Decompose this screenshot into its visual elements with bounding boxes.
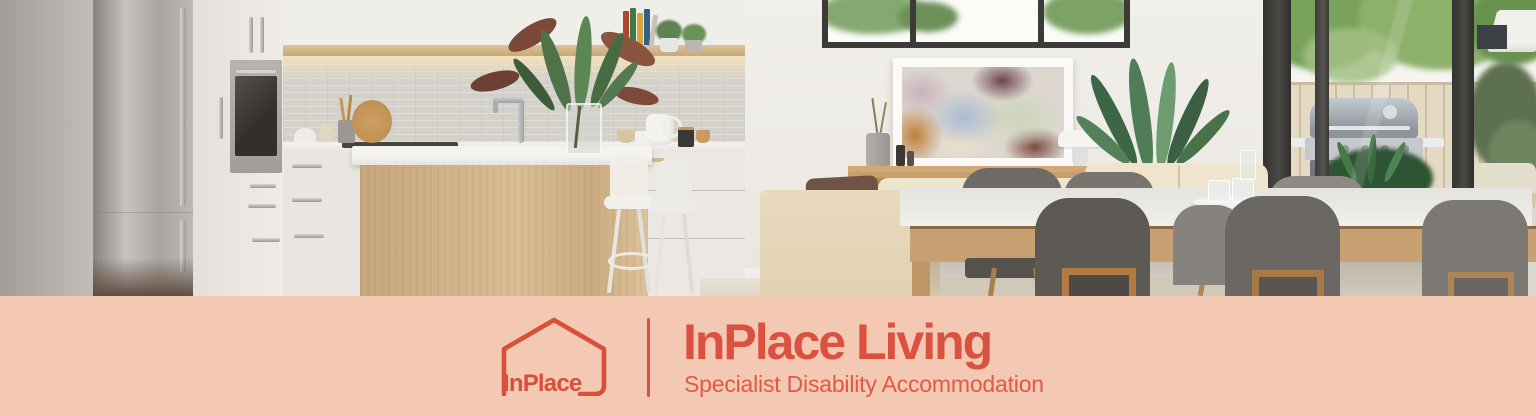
- dining-table-leg: [912, 262, 930, 296]
- foreground-chair-frame: [1448, 272, 1514, 296]
- upper-cabinet-handle-right: [260, 17, 264, 53]
- tall-glass: [1240, 150, 1256, 180]
- logo: InPlace: [497, 314, 611, 396]
- foreground-chair-frame: [1062, 268, 1136, 296]
- canister-black: [678, 127, 694, 147]
- brand-subtitle: Specialist Disability Accommodation: [684, 373, 1044, 396]
- refrigerator-handle-top: [180, 8, 186, 206]
- refrigerator-door-seam: [97, 212, 193, 213]
- window-mullion: [910, 0, 916, 42]
- drawer-handle: [292, 198, 322, 202]
- refrigerator-shadow: [93, 258, 195, 296]
- upper-cabinet-handle-left: [249, 17, 253, 53]
- jar: [320, 124, 333, 142]
- glass-vase: [566, 103, 602, 155]
- cabinet-handle: [219, 97, 223, 139]
- table-lamp-base: [1072, 147, 1088, 166]
- window-foliage: [1043, 0, 1130, 34]
- brand-title: InPlace Living: [683, 317, 991, 367]
- bar-stool-footring: [608, 252, 656, 270]
- shelf-plant-pot: [660, 38, 678, 52]
- logo-wordmark: InPlace: [503, 372, 581, 396]
- decor-bottle: [896, 145, 905, 166]
- faucet: [518, 99, 524, 143]
- book: [637, 13, 643, 45]
- drawer-handle-1: [250, 184, 276, 188]
- brand-band: InPlace InPlace Living Specialist Disabi…: [0, 296, 1536, 416]
- twig-stem: [879, 102, 887, 136]
- bar-stool-back: [610, 154, 648, 198]
- window-mullion: [1038, 0, 1044, 42]
- drawer-handle: [294, 234, 324, 238]
- faucet-tip: [493, 101, 498, 113]
- base-cabinets-left: [283, 153, 360, 296]
- hero-photo: [0, 0, 1536, 296]
- island-body: [360, 165, 648, 296]
- foreground-chair-frame: [1252, 270, 1324, 296]
- oven-glass: [235, 76, 277, 156]
- twig-stem: [871, 98, 878, 136]
- wall-left: [0, 0, 97, 296]
- drawer-handle-2: [248, 204, 276, 208]
- decor-bottle: [907, 151, 914, 166]
- wall-art-canvas: [902, 67, 1064, 158]
- drawer-handle-3: [252, 238, 280, 242]
- bar-stool-seat: [604, 196, 654, 209]
- bar-stool-back: [656, 160, 692, 202]
- bar-stool-seat: [650, 200, 698, 213]
- cutting-board: [352, 100, 392, 143]
- refrigerator: [97, 0, 193, 296]
- drawer-handle: [292, 164, 322, 168]
- decor-vase: [866, 133, 890, 166]
- hero-banner: InPlace InPlace Living Specialist Disabi…: [0, 0, 1536, 416]
- butter-dish: [294, 128, 316, 142]
- logo-divider: [647, 318, 650, 397]
- window-foliage: [898, 2, 958, 32]
- bowl-stack: [696, 130, 710, 143]
- drinking-glass: [1208, 180, 1230, 202]
- oven-handle: [236, 70, 276, 73]
- shelf-plant-pot: [685, 40, 702, 52]
- island-countertop: [352, 146, 652, 165]
- clerestory-window: [822, 0, 1130, 48]
